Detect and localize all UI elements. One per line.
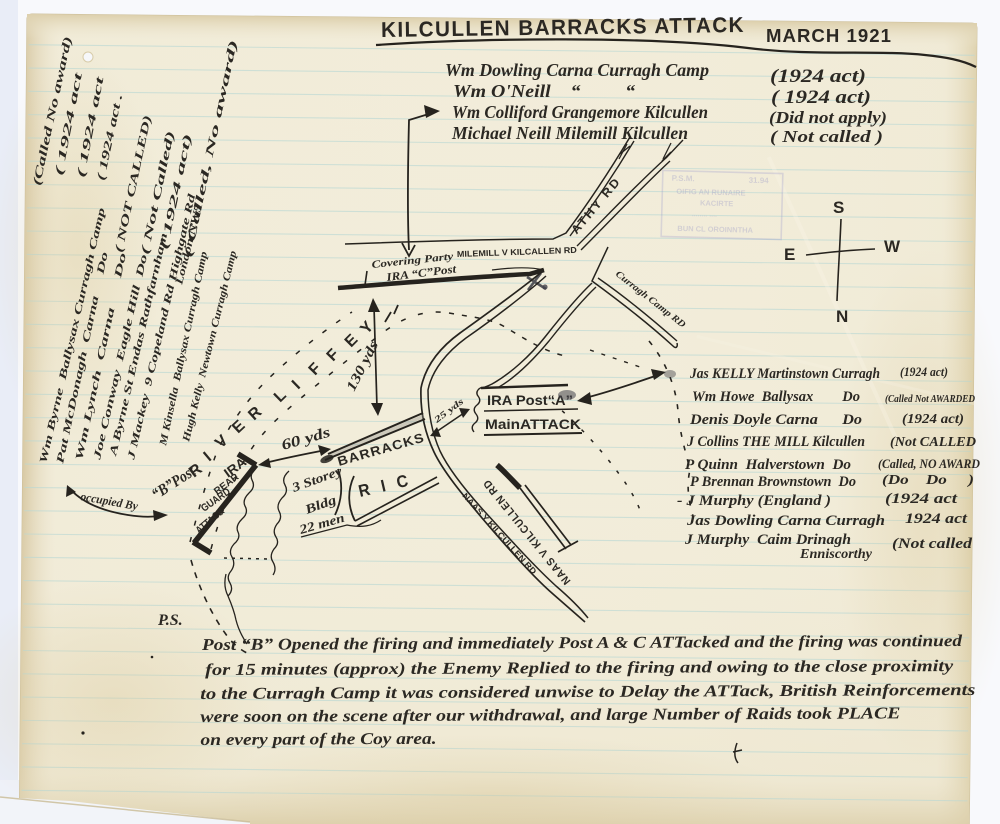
svg-text:(Not CALLED: (Not CALLED <box>890 435 976 450</box>
svg-text:1924 act: 1924 act <box>905 511 968 527</box>
svg-text:Post “B” Opened the firing and: Post “B” Opened the firing and immediate… <box>201 631 963 654</box>
svg-text:Wm Howe Ballysax Do: Wm Howe Ballysax Do <box>692 389 860 405</box>
svg-text:to the Curragh Camp it was con: to the Curragh Camp it was considered un… <box>200 680 975 703</box>
svg-text:KILCULLEN BARRACKS ATTACK: KILCULLEN BARRACKS ATTACK <box>381 13 745 42</box>
svg-text:for 15 minutes (approx) the En: for 15 minutes (approx) the Enemy Replie… <box>205 656 954 679</box>
svg-text:J Murphy Caim Drinagh: J Murphy Caim Drinagh <box>684 532 851 548</box>
svg-text:Denis Doyle Carna Do: Denis Doyle Carna Do <box>689 412 862 428</box>
svg-text:on every part of the Coy area.: on every part of the Coy area. <box>200 729 436 749</box>
svg-text:........ ....: ........ .... <box>692 211 718 219</box>
svg-text:were soon on the scene after o: were soon on the scene after our withdra… <box>200 703 900 726</box>
svg-text:N: N <box>836 307 848 326</box>
svg-text:(Did not apply): (Did not apply) <box>769 108 887 127</box>
svg-text:Jas KELLY Martinstown Curragh: Jas KELLY Martinstown Curragh <box>689 366 880 382</box>
svg-text:(1924 act): (1924 act) <box>770 66 866 87</box>
svg-text:MainATTACK: MainATTACK <box>485 416 581 432</box>
svg-text:(1924 act: (1924 act <box>885 491 958 507</box>
svg-text:OIFIG AN RUNAIRE: OIFIG AN RUNAIRE <box>676 187 746 198</box>
svg-text:(1924 act): (1924 act) <box>902 412 964 427</box>
svg-text:Michael Neill Milemill Kilcull: Michael Neill Milemill Kilcullen <box>451 123 688 143</box>
svg-text:W: W <box>884 237 901 256</box>
svg-text:E: E <box>784 245 795 264</box>
svg-text:( 1924 act): ( 1924 act) <box>771 87 871 108</box>
svg-text:- J Murphy (England ): - J Murphy (England ) <box>677 493 831 509</box>
svg-text:31.94: 31.94 <box>749 176 770 186</box>
svg-text:(Do Do ): (Do Do ) <box>882 473 974 488</box>
svg-text:(Called Not AWARDED: (Called Not AWARDED <box>885 393 975 405</box>
svg-text:Wm Colliford Grangemore Kilcul: Wm Colliford Grangemore Kilcullen <box>452 102 708 122</box>
svg-text:J Collins THE MILL Kilcullen: J Collins THE MILL Kilcullen <box>686 434 865 450</box>
svg-text:Wm O'Neill “ “: Wm O'Neill “ “ <box>453 81 635 101</box>
svg-text:P Brennan Brownstown Do: P Brennan Brownstown Do <box>690 474 856 490</box>
svg-text:(Not called: (Not called <box>892 536 973 552</box>
svg-text:MARCH 1921: MARCH 1921 <box>766 26 892 46</box>
svg-text:Wm Dowling Carna Curragh Camp: Wm Dowling Carna Curragh Camp <box>445 60 709 80</box>
svg-text:Enniscorthy: Enniscorthy <box>799 547 873 562</box>
svg-text:P.S.M.: P.S.M. <box>672 174 695 184</box>
svg-text:( Not called ): ( Not called ) <box>770 127 883 146</box>
svg-text:Jas Dowling Carna Curragh: Jas Dowling Carna Curragh <box>686 513 885 529</box>
svg-text:P.S.: P.S. <box>157 612 183 629</box>
svg-text:S: S <box>833 198 844 217</box>
svg-text:(Called, NO AWARD: (Called, NO AWARD <box>878 456 981 471</box>
svg-text:KACIRTE: KACIRTE <box>700 198 734 208</box>
svg-text:P Quinn Halverstown Do: P Quinn Halverstown Do <box>685 457 851 473</box>
svg-text:(1924 act): (1924 act) <box>900 364 948 379</box>
